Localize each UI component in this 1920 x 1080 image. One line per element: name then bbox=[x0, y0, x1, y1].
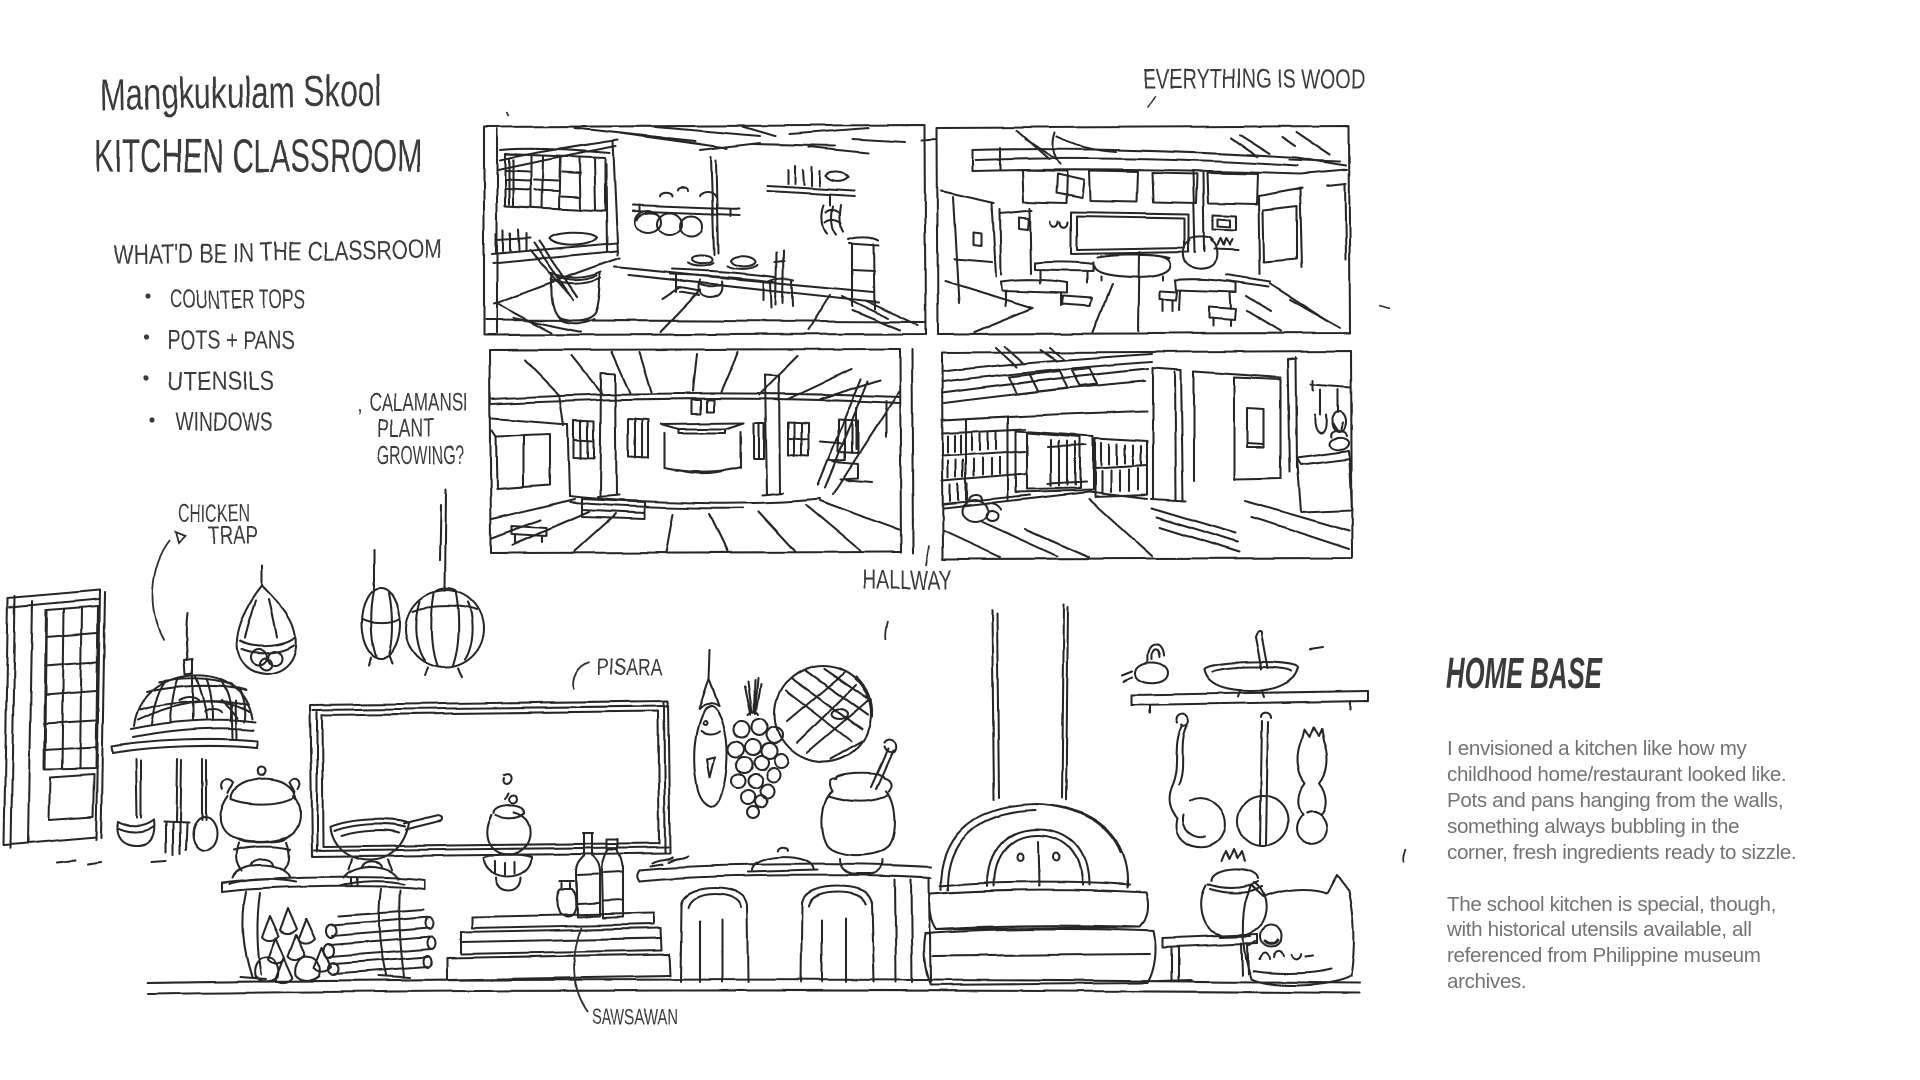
svg-text:EVERYTHING IS WOOD: EVERYTHING IS WOOD bbox=[1143, 63, 1365, 94]
svg-text:WHAT'D BE IN THE CLASSROOM: WHAT'D BE IN THE CLASSROOM bbox=[114, 234, 442, 270]
svg-text:HALLWAY: HALLWAY bbox=[862, 564, 952, 595]
svg-text:TRAP: TRAP bbox=[208, 522, 258, 550]
svg-text:PLANT: PLANT bbox=[377, 413, 434, 443]
svg-text:,: , bbox=[357, 394, 363, 417]
svg-text:WINDOWS: WINDOWS bbox=[176, 406, 273, 436]
svg-text:PISARA: PISARA bbox=[597, 654, 663, 681]
svg-text:COUNTER TOPS: COUNTER TOPS bbox=[170, 284, 305, 314]
svg-text:GROWING?: GROWING? bbox=[377, 440, 464, 470]
svg-text:SAWSAWAN: SAWSAWAN bbox=[592, 1004, 678, 1029]
svg-text:UTENSILS: UTENSILS bbox=[167, 366, 275, 396]
svg-text:Mangkukulam Skool: Mangkukulam Skool bbox=[99, 66, 382, 120]
svg-text:KITCHEN CLASSROOM: KITCHEN CLASSROOM bbox=[94, 129, 422, 182]
svg-text:POTS + PANS: POTS + PANS bbox=[167, 325, 295, 355]
svg-text:HOME BASE: HOME BASE bbox=[1446, 649, 1603, 698]
